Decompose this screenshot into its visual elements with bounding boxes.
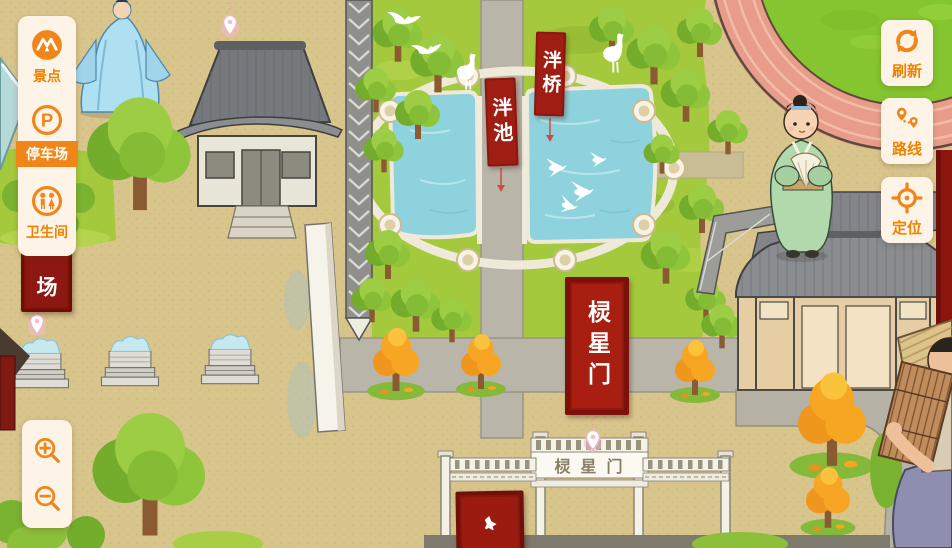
location-pin [584,431,602,453]
locate-label: 定位 [892,217,922,238]
location-pin [221,16,239,38]
sidebar-label-parking: 停车场 [16,141,78,167]
scenic-spot-icon [30,28,64,62]
zoom-in-icon [32,435,62,465]
lingxing-gate-banner[interactable]: 棂星门 [565,277,629,415]
parking-icon: P [30,103,64,137]
refresh-label: 刷新 [892,60,922,81]
svg-text:P: P [41,109,53,130]
partial-glyph [483,516,496,531]
sidebar-label-scenic-spots: 景点 [33,66,61,86]
route-label: 路线 [892,138,922,159]
partial-banner[interactable] [455,490,524,548]
sidebar-item-parking[interactable]: P 停车场 [18,103,76,167]
pan-bridge-banner[interactable]: 泮桥 [534,32,566,117]
stone-pedestals [11,335,258,388]
zoom-panel [22,420,72,528]
zoom-out-button[interactable] [29,480,65,516]
locate-icon [891,182,923,214]
refresh-icon [891,25,923,57]
red-banner-edge [936,150,952,330]
scenic-map-app: 场 泮桥 泮池 棂星门 棂星门 景点 P 停车场 卫生间 [0,0,952,548]
refresh-button[interactable]: 刷新 [881,20,933,86]
sidebar-label-restroom: 卫生间 [26,222,68,242]
zoom-out-icon [32,483,62,513]
locate-button[interactable]: 定位 [881,177,933,243]
location-pin [28,315,46,337]
map-canvas[interactable] [0,0,952,548]
sidebar-item-restroom[interactable]: 卫生间 [18,184,76,242]
poi-sidebar: 景点 P 停车场 卫生间 [18,16,76,256]
pan-pond-banner[interactable]: 泮池 [484,77,518,166]
route-icon [891,103,923,135]
restroom-icon [30,184,64,218]
zoom-in-button[interactable] [29,432,65,468]
sidebar-item-scenic-spots[interactable]: 景点 [18,28,76,86]
gate-plaque: 棂星门 [530,452,647,477]
route-button[interactable]: 路线 [881,98,933,164]
